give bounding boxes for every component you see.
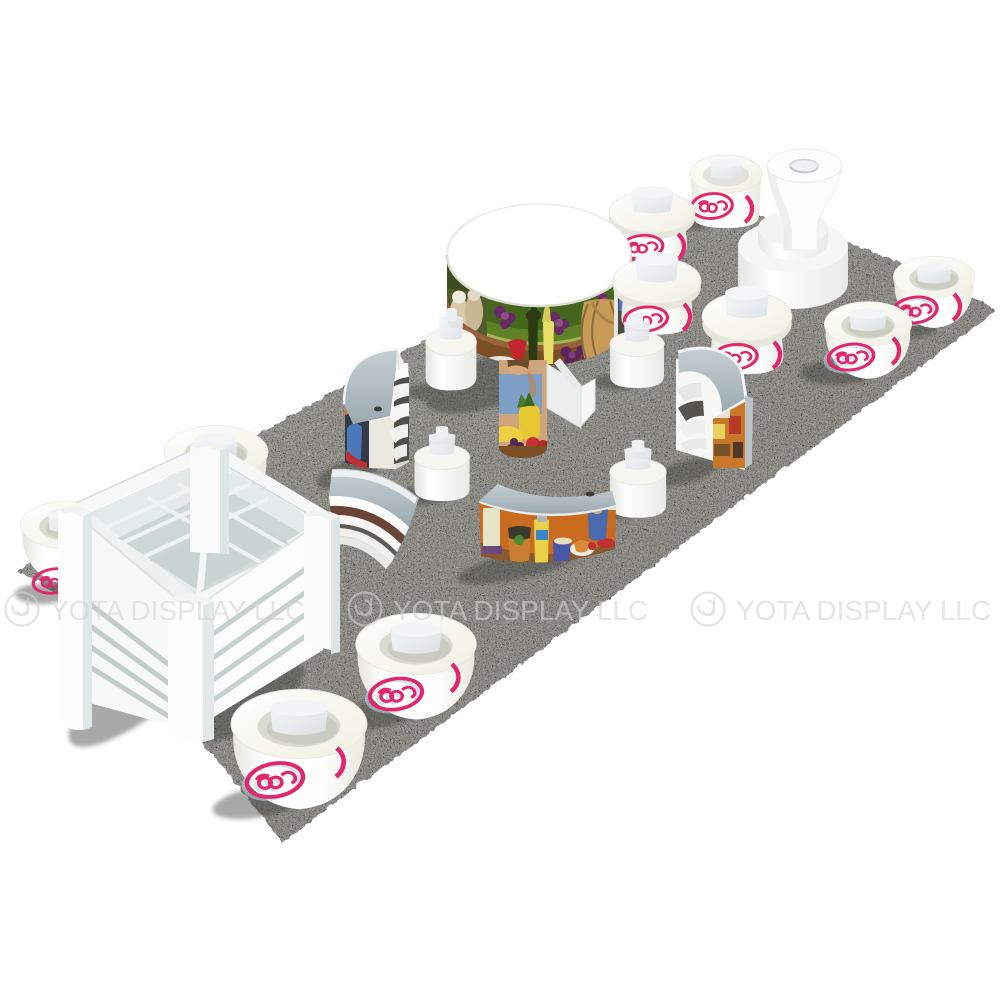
svg-text:YOTA DISPLAY LLC: YOTA DISPLAY LLC bbox=[736, 595, 991, 626]
svg-text:YOTA DISPLAY LLC: YOTA DISPLAY LLC bbox=[50, 595, 305, 626]
svg-text:YOTA DISPLAY LLC: YOTA DISPLAY LLC bbox=[393, 595, 648, 626]
